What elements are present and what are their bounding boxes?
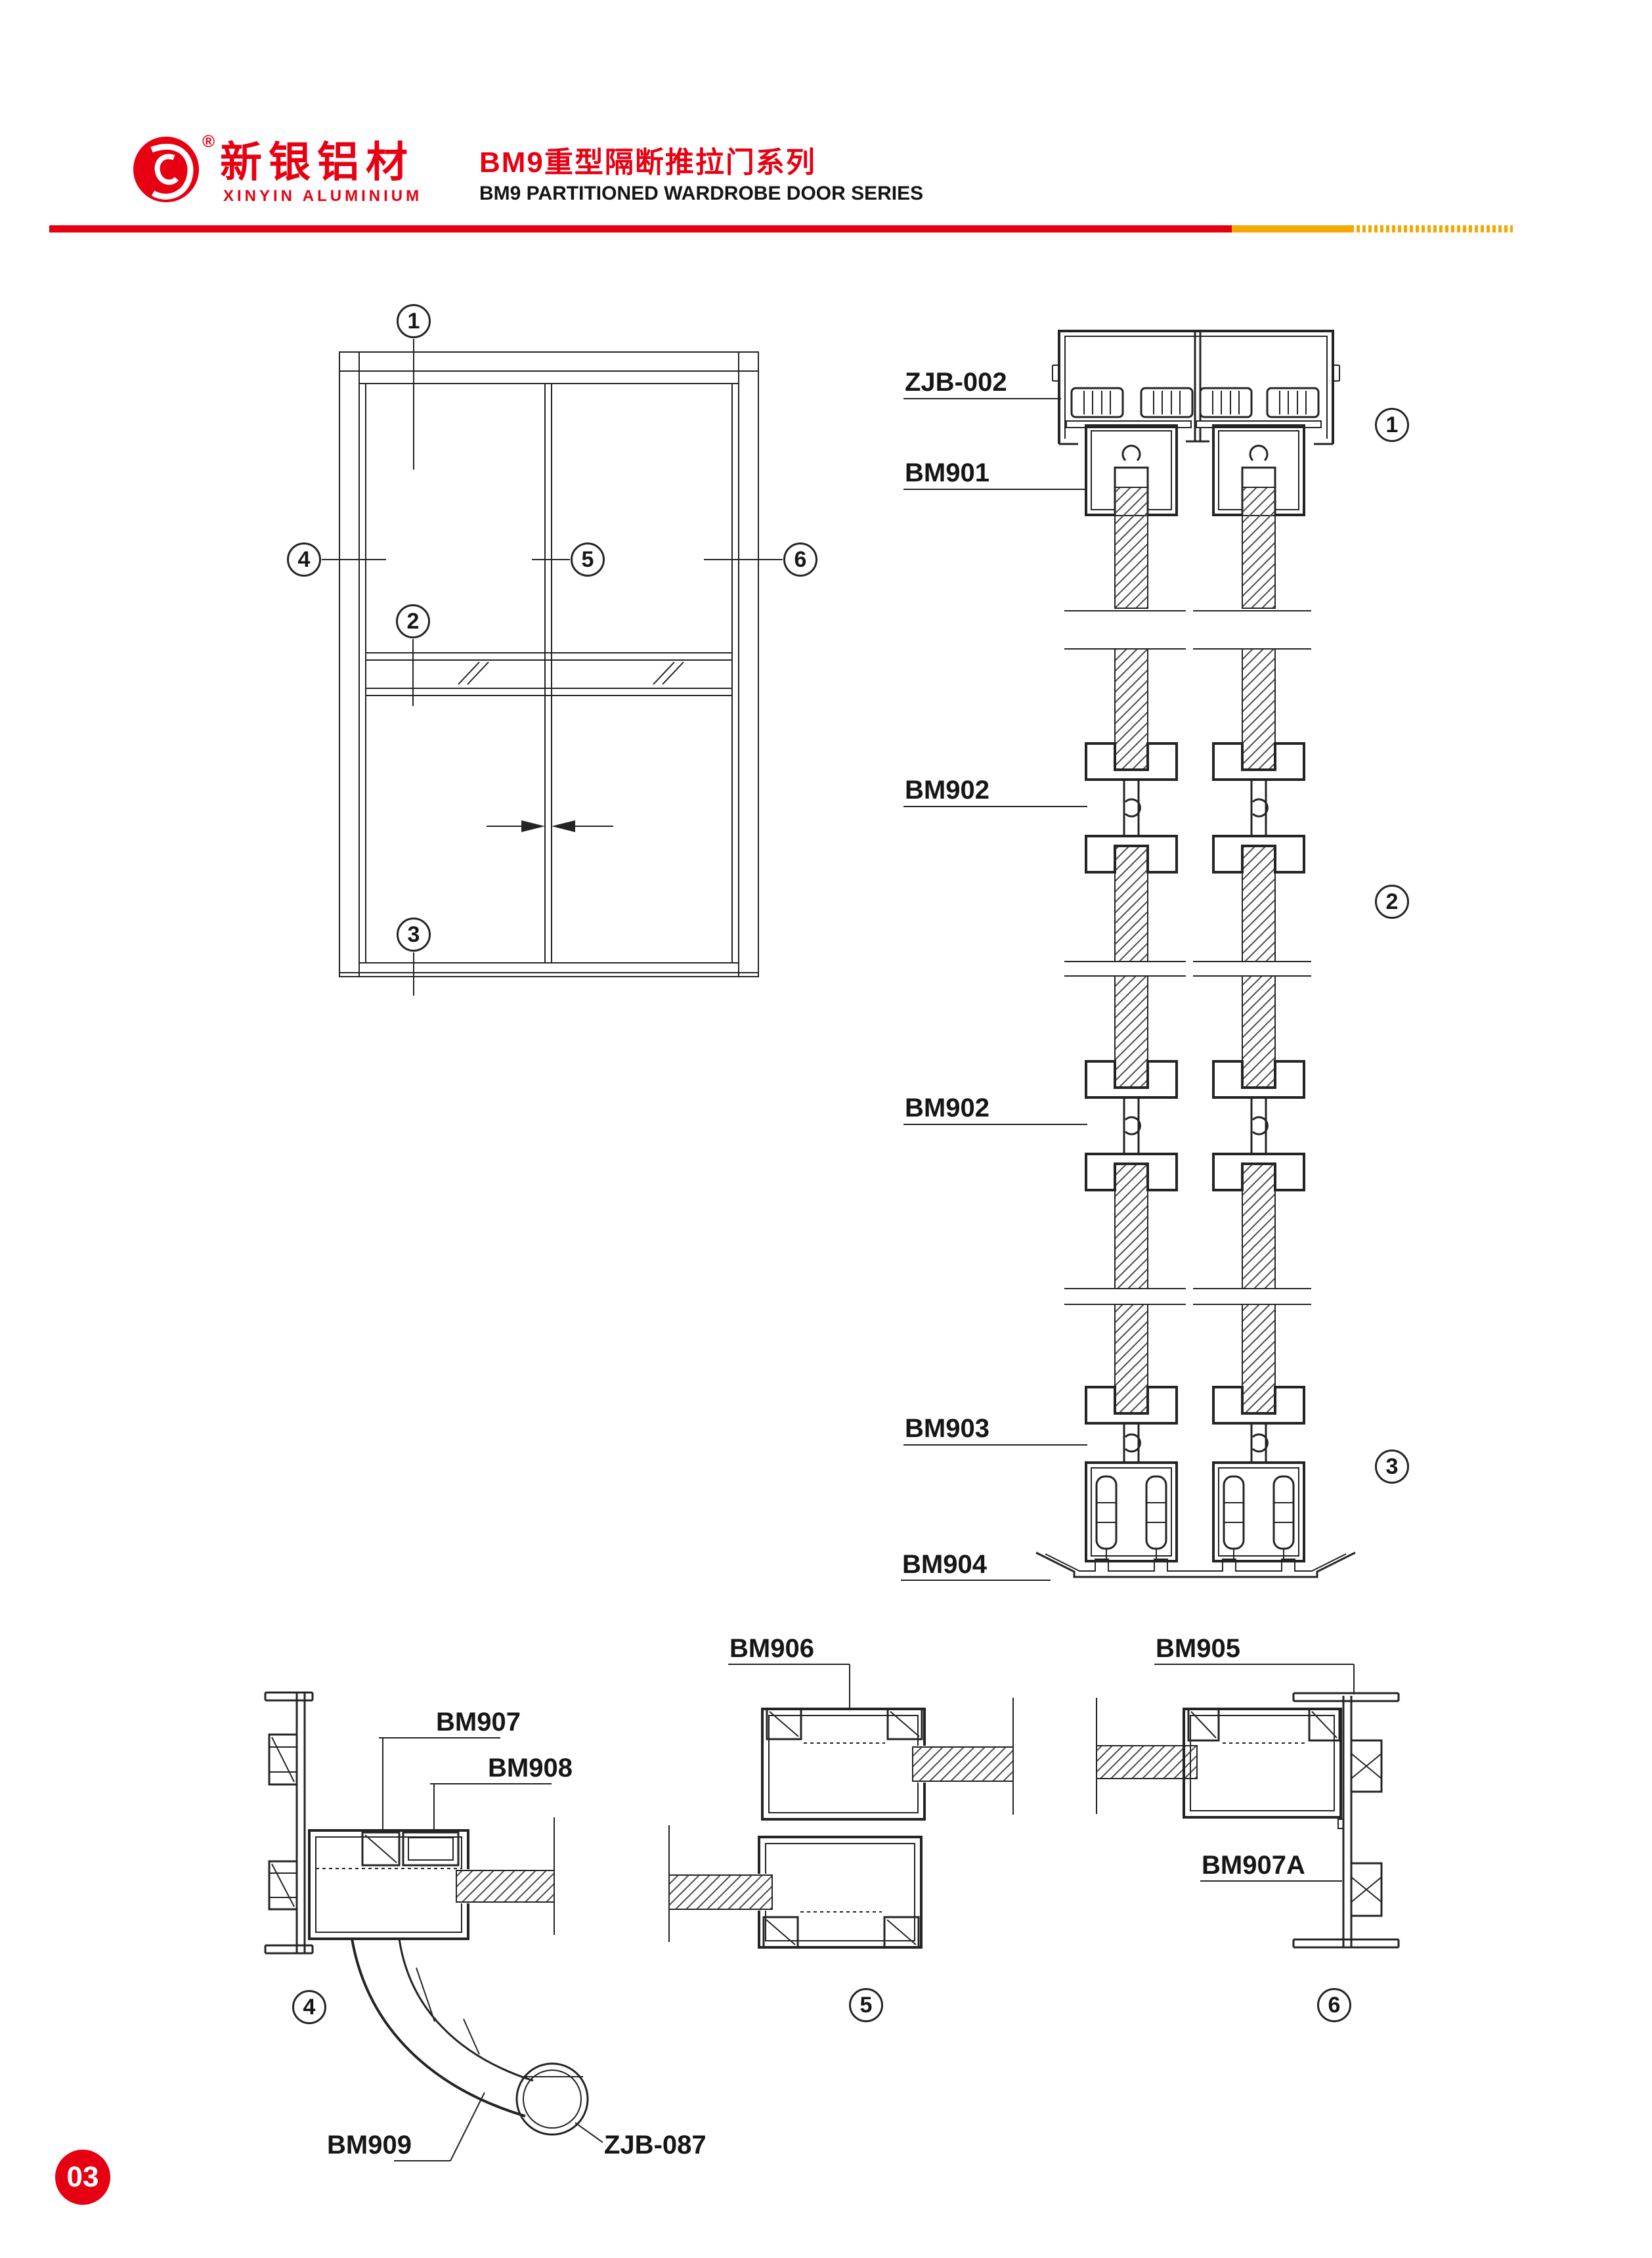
label-bm908: BM908: [488, 1754, 573, 1782]
label-bm901: BM901: [905, 458, 989, 487]
label-bm904: BM904: [902, 1550, 987, 1579]
section-bottom-track-bm904: [1036, 1553, 1355, 1577]
label-bm907: BM907: [436, 1708, 521, 1737]
technical-drawing: [0, 0, 1652, 2258]
detail-5-meeting-stiles: [668, 1664, 1014, 1947]
label-bm902-lower: BM902: [905, 1094, 989, 1122]
elevation-callout-1: 1: [397, 304, 431, 338]
section-callout-3: 3: [1375, 1450, 1409, 1484]
section-callout-1: 1: [1375, 408, 1409, 442]
section-label-leaders: [901, 399, 1087, 1580]
label-bm905: BM905: [1156, 1634, 1240, 1663]
page-number-badge: 03: [55, 2150, 110, 2205]
label-zjb002: ZJB-002: [905, 368, 1007, 397]
elevation-callout-5: 5: [571, 542, 605, 577]
elevation-callout-2: 2: [396, 604, 430, 638]
elevation-callout-4: 4: [287, 542, 321, 577]
elevation-callout-3: 3: [397, 918, 431, 952]
section-top-track-zjb002: [1053, 331, 1339, 515]
detail-callout-4: 4: [292, 1990, 326, 2024]
glass-symbol-marks: [458, 662, 684, 684]
elevation-callout-6: 6: [783, 542, 817, 577]
section-glass-panels: [1064, 487, 1311, 1413]
label-bm902-upper: BM902: [905, 776, 989, 805]
label-bm903: BM903: [905, 1414, 989, 1443]
label-bm907a: BM907A: [1202, 1851, 1305, 1880]
meeting-arrow-left: [521, 820, 545, 832]
catalog-page: { "header": { "brand_cn": "新银铝材", "brand…: [0, 0, 1652, 2258]
label-zjb087: ZJB-087: [604, 2131, 706, 2159]
detail-6-jamb: [1095, 1664, 1399, 1947]
label-bm909: BM909: [327, 2131, 412, 2159]
section-callout-2: 2: [1375, 885, 1409, 919]
section-bottom-rail-bm903: [1086, 1387, 1304, 1561]
detail-callout-6: 6: [1317, 1988, 1351, 2022]
meeting-arrow-right: [552, 820, 575, 832]
elevation-drawing: [322, 339, 783, 996]
bm909-handle-curve: [352, 1939, 525, 2116]
section-interlock-bm902: [1086, 743, 1304, 1190]
detail-callout-5: 5: [849, 1988, 883, 2022]
label-bm906: BM906: [729, 1634, 814, 1663]
